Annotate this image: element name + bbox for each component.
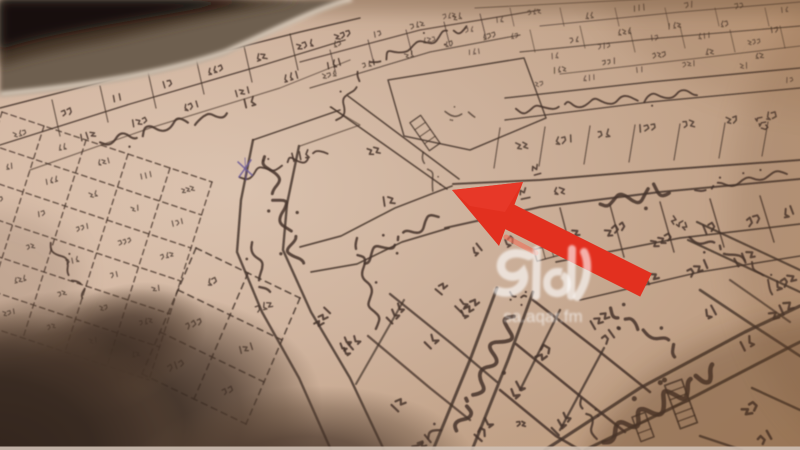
svg-text:sa.aqar.fm: sa.aqar.fm bbox=[503, 307, 582, 326]
